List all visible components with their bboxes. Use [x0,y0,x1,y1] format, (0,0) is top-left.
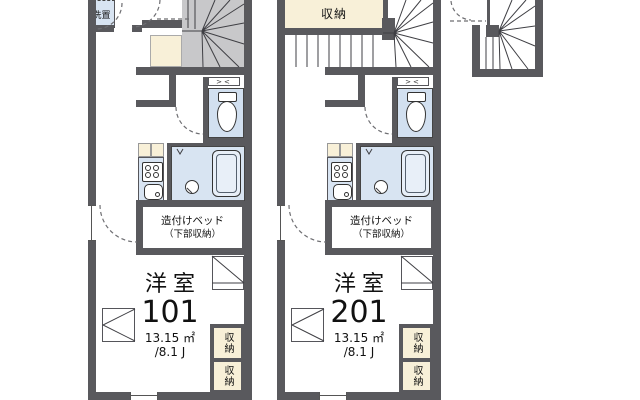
bed-label-line2: （下部収納） [164,228,221,241]
storage-label-1: 収納 [409,332,424,354]
floorplan-canvas: 洗置 >< [0,0,640,400]
bed-label-line1: 造付けベッド [350,214,413,229]
wall-left [88,0,96,400]
bathtub-icon [401,150,430,197]
kitchen-cabinet-a [138,143,151,157]
storage-block: 収納 収納 [399,324,433,393]
wall-right [244,0,252,400]
bathtub-icon [212,150,241,197]
wall-hall-vertical [169,75,176,107]
staircase-winder [182,0,244,67]
wall-entry-left [96,25,114,32]
fragment-wall-right [535,0,543,77]
wall-stair-stub [383,0,388,20]
kitchen-cabinet-b [340,143,353,157]
left-wall-window [88,205,96,241]
bed-label-line1: 造付けベッド [161,214,224,229]
room-area-tatami: /8.1 J [155,345,185,359]
bottom-wall-window [130,392,158,400]
room-number: 201 [330,297,387,329]
stove-icon [142,162,163,182]
built-in-bed-box: 造付けベッド （下部収納） [325,200,433,255]
room-type-label: 洋室 [139,272,201,297]
room-area-sqm: 13.15 ㎡ [145,331,195,345]
toilet-room [397,88,433,138]
drain-icon [374,180,388,194]
wall-below-stairs [325,67,433,75]
window-symbol-box [291,308,324,342]
bed-label-line2: （下部収納） [353,228,410,241]
room-type-label: 洋室 [328,272,390,297]
stair-newel [382,18,395,40]
kitchen-counter [138,157,164,202]
storage-label-2: 収納 [409,365,424,387]
wall-bottom [277,392,441,400]
storage-cell-2: 収納 [403,362,430,390]
louver-glyph: >< [405,78,421,86]
kitchen-sink-icon [333,184,352,200]
bathroom [361,147,433,200]
fragment-wall-stub [487,0,490,25]
louver-window-icon: >< [397,77,429,86]
unit-201-plan: 収納 洗置 >< [277,0,441,400]
shoe-storage-box [150,35,182,67]
kitchen-cabinet-b [151,143,164,157]
stove-icon [331,162,352,182]
unit-101-plan: 洗置 >< [88,0,252,400]
window-symbol-box [102,308,135,342]
faucet-icon [155,192,160,197]
wall-left [277,0,285,400]
toilet-bowl-icon [406,101,426,132]
storage-label-2: 収納 [220,365,235,387]
wall-bottom [88,392,252,400]
room-area-tatami: /8.1 J [344,345,374,359]
storage-label-1: 収納 [220,332,235,354]
room-area-sqm: 13.15 ㎡ [334,331,384,345]
fragment-wall-bottom [472,69,543,77]
kitchen-counter [327,157,353,202]
left-wall-window [277,205,285,241]
built-in-bed-label: 造付けベッド （下部収納） [332,207,431,248]
storage-cell-2: 収納 [214,362,241,390]
storage-cell-1: 収納 [214,328,241,358]
bathroom [172,147,244,200]
faucet-icon [344,192,349,197]
top-storage-label: 収納 [285,0,383,26]
wall-storage-bottom [285,28,383,35]
kitchen-cabinet-a [327,143,340,157]
kitchen-sink-icon [144,184,163,200]
storage-block: 収納 収納 [210,324,244,393]
storage-cell-1: 収納 [403,328,430,358]
toilet-room [208,88,244,138]
built-in-bed-label: 造付けベッド （下部収納） [143,207,242,248]
wall-below-stairs [136,67,244,75]
louver-glyph: >< [216,78,232,86]
toilet-bowl-icon [217,101,237,132]
wall-hall-vertical [358,75,365,107]
drain-icon [185,180,199,194]
bottom-wall-window [319,392,347,400]
room-number: 101 [141,297,198,329]
built-in-bed-box: 造付けベッド （下部収納） [136,200,244,255]
fragment-stair-newel [486,25,499,37]
adjacent-stair-fragment [440,0,550,82]
wall-entry-left2 [132,25,142,32]
louver-window-icon: >< [208,77,240,86]
